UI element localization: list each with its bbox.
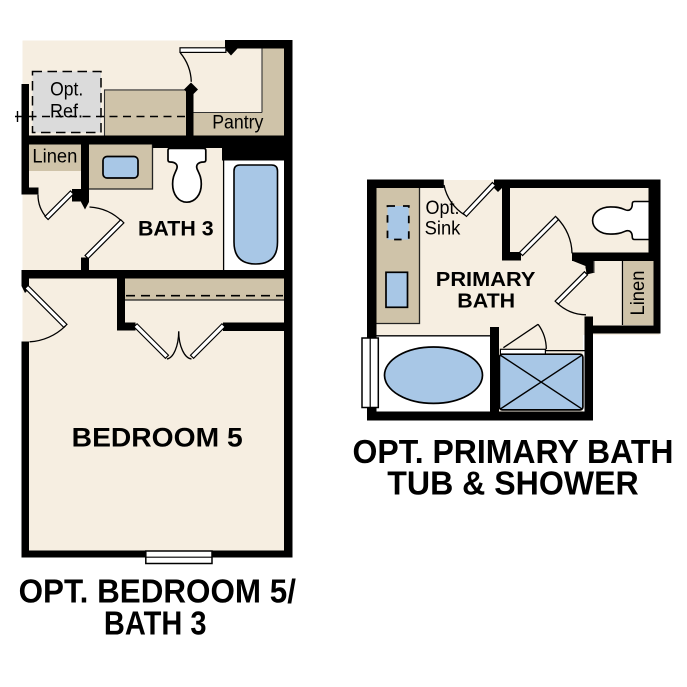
svg-text:Linen: Linen bbox=[32, 146, 77, 167]
svg-text:TUB & SHOWER: TUB & SHOWER bbox=[387, 464, 639, 501]
svg-text:PRIMARY: PRIMARY bbox=[436, 269, 536, 291]
svg-text:Pantry: Pantry bbox=[212, 113, 264, 134]
svg-text:Linen: Linen bbox=[628, 271, 649, 316]
svg-text:BATH 3: BATH 3 bbox=[104, 605, 207, 642]
svg-text:BEDROOM 5: BEDROOM 5 bbox=[72, 423, 243, 453]
svg-text:Opt.: Opt. bbox=[426, 198, 460, 219]
svg-text:BATH: BATH bbox=[457, 290, 515, 312]
svg-text:Ref.: Ref. bbox=[50, 102, 83, 123]
svg-text:Opt.: Opt. bbox=[50, 80, 83, 101]
svg-text:Sink: Sink bbox=[425, 219, 461, 240]
svg-text:BATH 3: BATH 3 bbox=[138, 218, 214, 241]
